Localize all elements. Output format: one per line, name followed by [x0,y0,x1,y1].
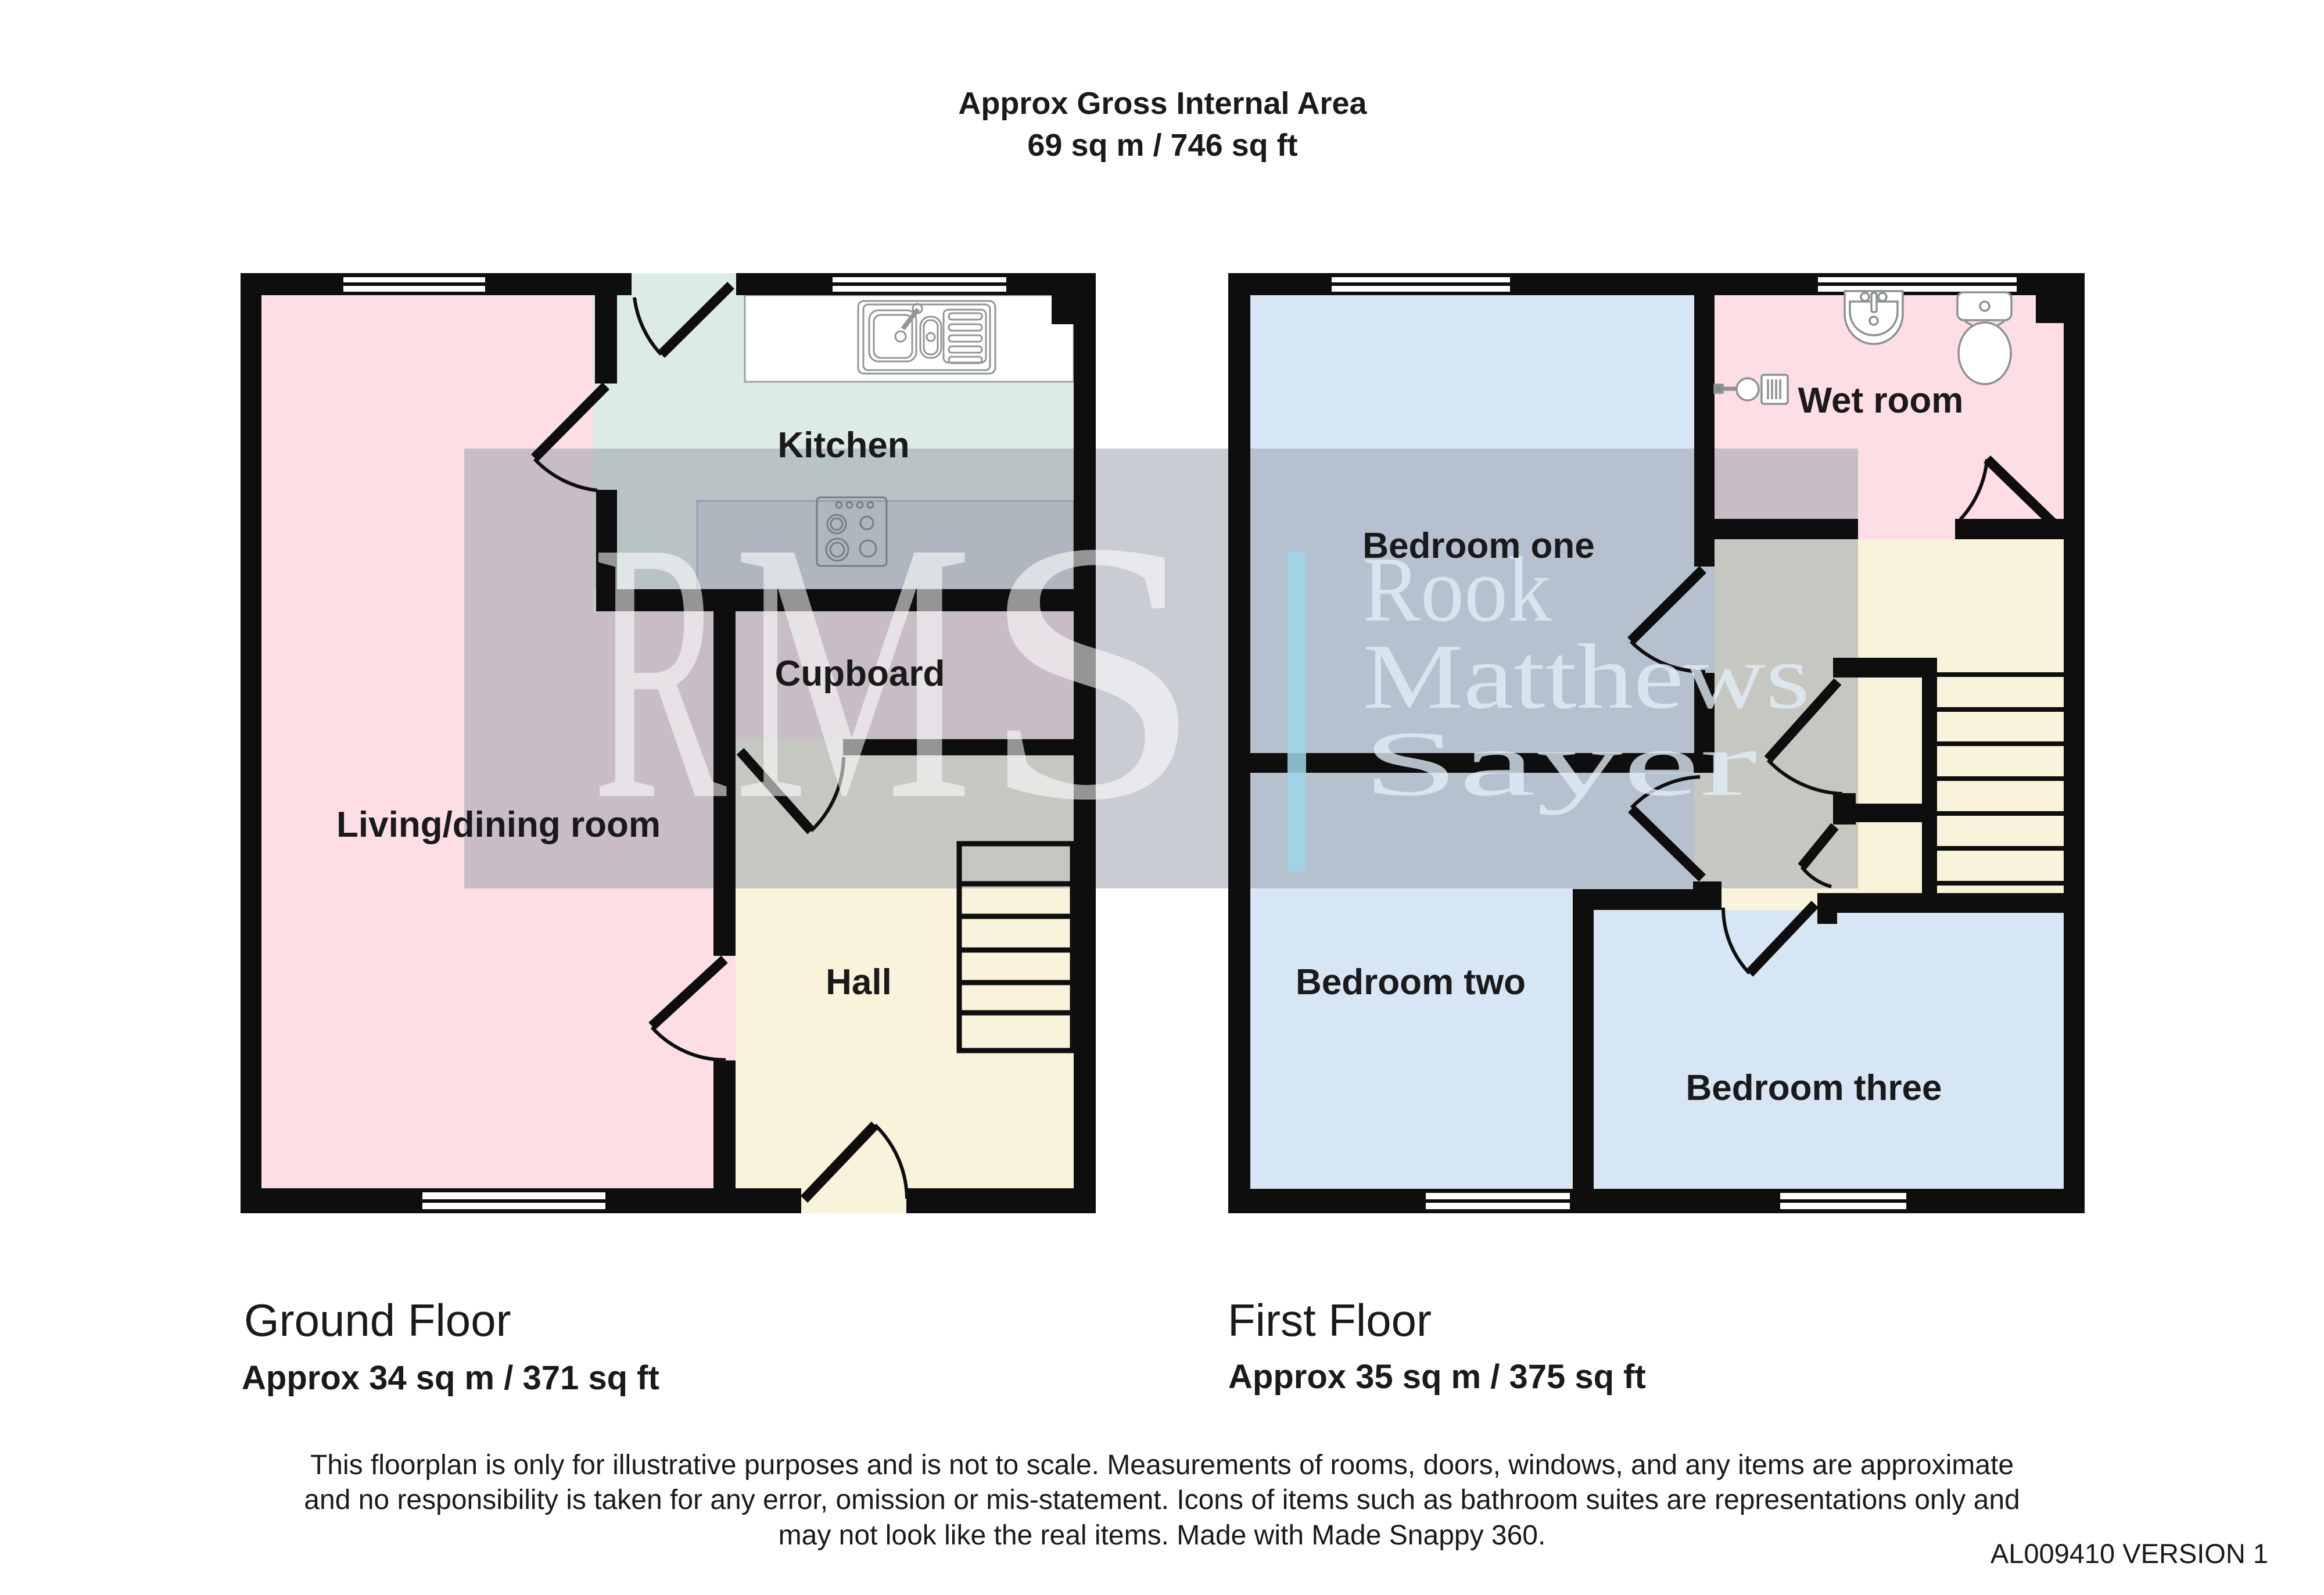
svg-text:Ground Floor: Ground Floor [244,1295,511,1346]
svg-text:Kitchen: Kitchen [777,425,909,465]
svg-text:Approx Gross Internal Area: Approx Gross Internal Area [958,86,1367,121]
svg-text:Bedroom two: Bedroom two [1296,962,1526,1002]
svg-text:AL009410 VERSION 1: AL009410 VERSION 1 [1991,1538,2268,1569]
svg-text:Hall: Hall [826,962,892,1002]
svg-text:Bedroom three: Bedroom three [1686,1068,1942,1108]
svg-text:may not look like the real ite: may not look like the real items. Made w… [779,1520,1546,1551]
svg-text:Living/dining room: Living/dining room [336,805,661,845]
svg-text:Wet room: Wet room [1798,381,1964,421]
svg-text:This floorplan is only for ill: This floorplan is only for illustrative … [310,1450,2014,1481]
svg-text:Approx 35 sq m / 375 sq ft: Approx 35 sq m / 375 sq ft [1228,1358,1646,1396]
svg-text:S: S [980,465,1203,877]
svg-text:69 sq m / 746 sq ft: 69 sq m / 746 sq ft [1027,128,1297,163]
svg-text:and no responsibility is taken: and no responsibility is taken for any e… [304,1485,2020,1515]
svg-text:Bedroom one: Bedroom one [1362,526,1595,566]
svg-text:Sayer: Sayer [1362,712,1758,815]
svg-text:Cupboard: Cupboard [775,654,945,694]
svg-text:First Floor: First Floor [1228,1295,1432,1346]
svg-text:Approx 34 sq m / 371 sq ft: Approx 34 sq m / 371 sq ft [242,1359,659,1397]
